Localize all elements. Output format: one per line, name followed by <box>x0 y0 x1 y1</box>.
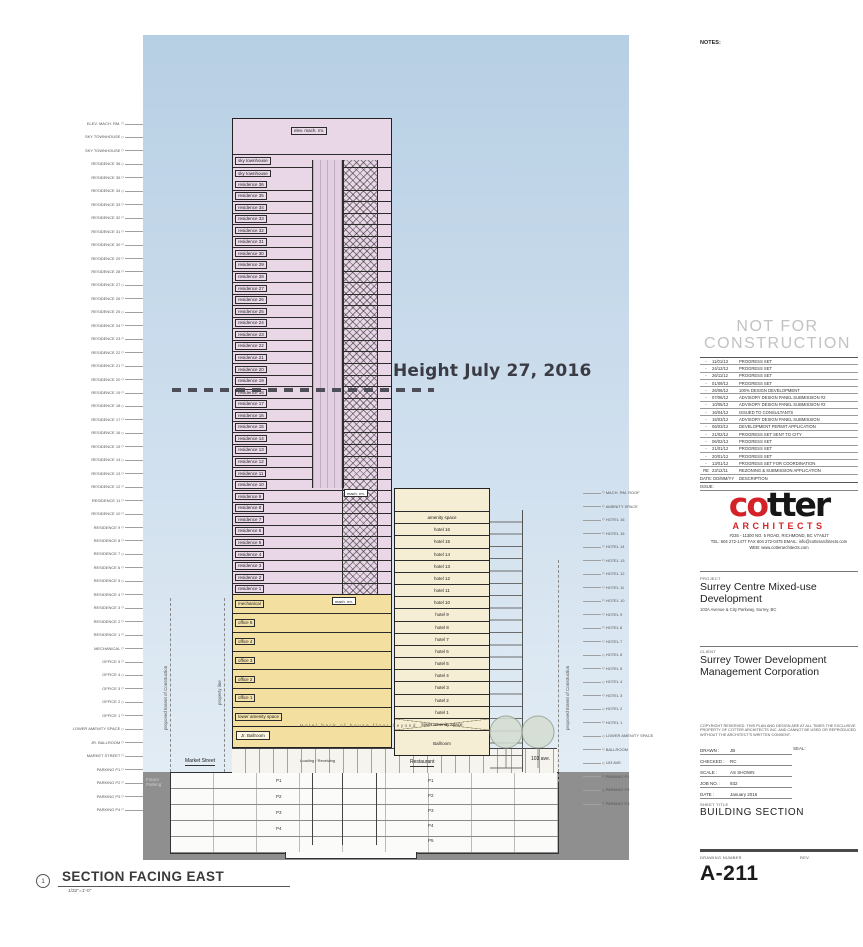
revision-code: - <box>700 410 712 415</box>
elevator-machine-room: elev. mach. rm. <box>233 119 391 155</box>
elevation-diamond-icon: ◇ <box>602 640 605 644</box>
level-marker: RESIDENCE 25◇ <box>2 308 143 316</box>
level-marker-label: RESIDENCE 16 <box>91 431 120 435</box>
elevation-diamond-icon: ◇ <box>602 762 605 766</box>
floor-label: residence 17 <box>235 400 267 408</box>
level-marker-label: RESIDENCE 20 <box>91 378 120 382</box>
level-marker: PARKING P2◇ <box>2 779 143 787</box>
info-row: SCALE :AS SHOWN <box>700 766 792 777</box>
level-marker: RESIDENCE 14◇ <box>2 456 143 464</box>
leader-line <box>583 736 601 737</box>
property-line-label: property line <box>217 625 222 705</box>
leader-line <box>125 500 143 501</box>
level-marker: RESIDENCE 22◇ <box>2 349 143 357</box>
leader-line <box>583 628 601 629</box>
floor-label: residence 9 <box>235 493 264 501</box>
elevation-diamond-icon: ◇ <box>602 748 605 752</box>
level-marker-label: SKY TOWNHOUSE <box>85 135 120 139</box>
level-marker: RESIDENCE 17◇ <box>2 416 143 424</box>
leader-line <box>125 648 143 649</box>
floor-label: residence 25 <box>235 308 267 316</box>
revision-description: DEVELOPMENT PERMIT APPLICATION <box>739 424 858 429</box>
revision-date: 21/02/12 <box>712 432 739 437</box>
section-title: SECTION FACING EAST <box>62 869 224 884</box>
elevation-diamond-icon: ◇ <box>121 606 124 610</box>
level-marker-label: OFFICE 2 <box>102 700 120 704</box>
foundation-stub <box>285 852 417 859</box>
elevation-diamond-icon: ◇ <box>121 781 124 785</box>
revision-description: ADVISORY DESIGN PANEL SUBMISSION #2 <box>739 402 858 407</box>
elevation-diamond-icon: ◇ <box>602 694 605 698</box>
level-marker: RESIDENCE 33◇ <box>2 201 143 209</box>
revision-row: -21/01/12PROGRESS SET <box>700 446 858 453</box>
level-marker-label: RESIDENCE 35 <box>91 176 120 180</box>
revision-date: 24/12/12 <box>712 366 739 371</box>
floor-label: office 2 <box>235 676 255 684</box>
level-marker-label: RESIDENCE 12 <box>91 485 120 489</box>
floor-label: office 3 <box>235 657 255 665</box>
elevation-diamond-icon: ◇ <box>121 176 124 180</box>
level-marker: RESIDENCE 21◇ <box>2 362 143 370</box>
level-marker: RESIDENCE 5◇ <box>2 577 143 585</box>
floor-row: hotel 9 <box>395 608 489 620</box>
elevation-diamond-icon: ◇ <box>121 499 124 503</box>
revision-row: -06/02/12PROGRESS SET <box>700 438 858 445</box>
leader-line <box>583 533 601 534</box>
elevation-diamond-icon: ◇ <box>602 586 605 590</box>
revision-description: REZONING & SUBMISSION APPLICATION <box>739 468 858 473</box>
project-address: 103A Avenue & City Parkway, Surrey, BC <box>700 607 776 612</box>
nfc-line1: NOT FOR <box>695 318 860 335</box>
revision-row: -13/01/12PROGRESS SET FOR COORDINATION <box>700 460 858 467</box>
leader-line <box>125 191 143 192</box>
floor-row: hotel 15 <box>395 535 489 547</box>
elevation-diamond-icon: ◇ <box>121 364 124 368</box>
elevation-diamond-icon: ◇ <box>602 735 605 739</box>
seal-label: SEAL: <box>793 746 806 751</box>
floor-label: residence 28 <box>235 273 267 281</box>
elevation-diamond-icon: ◇ <box>602 626 605 630</box>
leader-line <box>583 493 601 494</box>
level-marker: ◇HOTEL 7 <box>583 638 698 646</box>
floor-row: mechanical <box>233 595 391 613</box>
leader-line <box>583 587 601 588</box>
floor-label: residence 8 <box>235 504 264 512</box>
leader-line <box>125 769 143 770</box>
level-marker: RESIDENCE 3◇ <box>2 604 143 612</box>
level-marker-label: MACH. RM. ROOF <box>606 491 640 495</box>
level-marker: RESIDENCE 27◇ <box>2 281 143 289</box>
level-marker-label: RESIDENCE 15 <box>91 445 120 449</box>
leader-line <box>125 271 143 272</box>
elevation-diamond-icon: ◇ <box>121 311 124 315</box>
elevation-diamond-icon: ◇ <box>602 532 605 536</box>
level-marker: PARKING P4◇ <box>2 806 143 814</box>
info-row: DATE :January 2016 <box>700 788 792 799</box>
firm-contact: TEL: 604 272-1477 FAX 604 272-0475 EMAIL… <box>700 539 858 544</box>
level-marker: SKY TOWNHOUSE◇ <box>2 147 143 155</box>
revision-code: - <box>700 446 712 451</box>
revision-row: -21/02/12PROGRESS SET SENT TO CITY <box>700 431 858 438</box>
floor-label: residence 33 <box>235 215 267 223</box>
level-marker-label: PARKING P3 <box>606 802 630 806</box>
floor-row: hotel 3 <box>395 681 489 693</box>
elevation-diamond-icon: ◇ <box>121 580 124 584</box>
drawing-sheet: Future Parking elev. mach. rm. sky townh… <box>0 0 863 947</box>
level-marker: ◇PARKING P1 <box>583 773 698 781</box>
level-marker: ◇PARKING P2 <box>583 786 698 794</box>
floor-label: residence 12 <box>235 458 267 466</box>
floor-row: office 4 <box>233 632 391 651</box>
elevation-diamond-icon: ◇ <box>602 667 605 671</box>
elevation-diamond-icon: ◇ <box>121 539 124 543</box>
floor-row: hotel 8 <box>395 621 489 633</box>
architects-wordmark: ARCHITECTS <box>700 521 858 531</box>
leader-line <box>583 560 601 561</box>
floor-row: office 2 <box>233 669 391 688</box>
level-marker: RESIDENCE 24◇ <box>2 322 143 330</box>
floor-label: residence 19 <box>235 377 267 385</box>
revision-row: -01/09/12PROGRESS SET <box>700 380 858 387</box>
leader-line <box>125 460 143 461</box>
elevation-diamond-icon: ◇ <box>121 378 124 382</box>
hotel-wing-section: amenity spacehotel 16hotel 15hotel 14hot… <box>394 488 490 756</box>
floor-label: hotel 4 <box>435 673 449 678</box>
level-marker: OFFICE 4◇ <box>2 671 143 679</box>
floor-label: residence 36 <box>235 181 267 189</box>
revision-date: 16/04/12 <box>712 410 739 415</box>
level-marker: ◇HOTEL 5 <box>583 665 698 673</box>
elevation-diamond-icon: ◇ <box>121 647 124 651</box>
leader-line <box>583 749 601 750</box>
elevation-diamond-icon: ◇ <box>121 163 124 167</box>
leader-line <box>125 446 143 447</box>
level-marker: ◇BALLROOM <box>583 746 698 754</box>
leader-line <box>125 729 143 730</box>
firm-address: #235 - 11300 NO. 5 ROAD, RICHMOND, BC V7… <box>700 533 858 538</box>
level-marker: ◇HOTEL 15 <box>583 530 698 538</box>
floor-row: office 1 <box>233 688 391 707</box>
revision-code: - <box>700 373 712 378</box>
level-marker-label: RESIDENCE 34 <box>91 189 120 193</box>
leader-line <box>125 419 143 420</box>
level-marker: RESIDENCE 20◇ <box>2 376 143 384</box>
elevation-diamond-icon: ◇ <box>121 284 124 288</box>
elevation-diamond-icon: ◇ <box>602 572 605 576</box>
floor-label: residence 10 <box>235 481 267 489</box>
revision-table: -11/01/13PROGRESS SET-24/12/12PROGRESS S… <box>700 357 858 491</box>
mach-rm-label: mach. rm. <box>344 489 368 497</box>
elevation-diamond-icon: ◇ <box>121 728 124 732</box>
info-row: CHECKED :RC <box>700 755 792 766</box>
leader-line <box>125 312 143 313</box>
revision-description: ISSUED TO CONSULTANTS <box>739 410 858 415</box>
floor-label: sky townhouse <box>235 157 271 165</box>
floor-label: residence 24 <box>235 319 267 327</box>
extent-label-right: proposed Extent of Construction <box>565 600 570 730</box>
level-marker-label: RESIDENCE 29 <box>91 257 120 261</box>
podium-floors: mechanicaloffice 5office 4office 3office… <box>233 595 391 726</box>
drawing-number-label: DRAWING NUMBER <box>700 855 742 860</box>
elevation-diamond-icon: ◇ <box>121 459 124 463</box>
floor-label: residence 35 <box>235 192 267 200</box>
revision-row: -26/11/12PROGRESS SET <box>700 373 858 380</box>
floor-label: residence 31 <box>235 238 267 246</box>
level-marker-label: RESIDENCE 2 <box>94 620 121 624</box>
level-marker: RESIDENCE 26◇ <box>2 295 143 303</box>
level-marker: RESIDENCE 12◇ <box>2 483 143 491</box>
leader-line <box>125 688 143 689</box>
floor-label: residence 2 <box>235 574 264 582</box>
level-marker-label: RESIDENCE 6 <box>94 566 121 570</box>
level-marker-label: RESIDENCE 17 <box>91 418 120 422</box>
revision-description: PROGRESS SET SENT TO CITY <box>739 432 858 437</box>
section-scale: 1/32"=1'-0" <box>68 889 91 894</box>
jr-ballroom-label: Jr. Ballroom <box>236 731 270 740</box>
level-marker-label: HOTEL 10 <box>606 599 625 603</box>
level-marker: ◇HOTEL 2 <box>583 705 698 713</box>
level-marker: RESIDENCE 1◇ <box>2 631 143 639</box>
leader-line <box>125 204 143 205</box>
leader-line <box>125 473 143 474</box>
floor-label: residence 7 <box>235 516 264 524</box>
leader-line <box>125 164 143 165</box>
floor-label: hotel 10 <box>434 600 450 605</box>
floor-row: office 3 <box>233 651 391 670</box>
level-marker-label: RESIDENCE 19 <box>91 391 120 395</box>
revision-row: RE23/12/11REZONING & SUBMISSION APPLICAT… <box>700 467 858 474</box>
revision-code: - <box>700 454 712 459</box>
podium-section: mechanicaloffice 5office 4office 3office… <box>232 594 392 726</box>
level-marker: ELEV. MACH. RM.◇ <box>2 120 143 128</box>
jr-ballroom-level: Jr. Ballroom <box>232 726 392 748</box>
level-marker: ◇HOTEL 1 <box>583 719 698 727</box>
elevation-diamond-icon: ◇ <box>121 701 124 705</box>
leader-line <box>125 594 143 595</box>
floor-label: residence 13 <box>235 446 267 454</box>
elevation-diamond-icon: ◇ <box>602 681 605 685</box>
rev-desc-col-label: DESCRIPTION <box>739 476 768 481</box>
elevation-diamond-icon: ◇ <box>121 122 124 126</box>
level-marker-label: RESIDENCE 1 <box>94 633 121 637</box>
leader-line <box>125 325 143 326</box>
floor-label: hotel 3 <box>435 685 449 690</box>
leader-line <box>583 776 601 777</box>
revision-description: PROGRESS SET <box>739 439 858 444</box>
level-marker: RESIDENCE 13◇ <box>2 470 143 478</box>
level-marker: ◇HOTEL 12 <box>583 570 698 578</box>
revision-code: - <box>700 439 712 444</box>
elevation-diamond-icon: ◇ <box>121 203 124 207</box>
level-marker-label: HOTEL 1 <box>606 721 623 725</box>
level-marker-label: OFFICE 4 <box>102 673 120 677</box>
level-marker-label: RESIDENCE 22 <box>91 351 120 355</box>
leader-line <box>125 218 143 219</box>
floor-label: residence 29 <box>235 261 267 269</box>
level-marker-label: PARKING P2 <box>606 788 630 792</box>
level-marker-label: HOTEL 14 <box>606 545 625 549</box>
logo-part1: co <box>729 485 767 524</box>
elevation-diamond-icon: ◇ <box>121 593 124 597</box>
divider <box>700 571 858 572</box>
revision-date: 10/05/12 <box>712 402 739 407</box>
leader-line <box>125 540 143 541</box>
floor-row: hotel 10 <box>395 596 489 608</box>
revision-code: RE <box>700 468 712 473</box>
leader-line <box>125 487 143 488</box>
elevation-diamond-icon: ◇ <box>121 485 124 489</box>
leader-line <box>125 756 143 757</box>
level-marker: RESIDENCE 4◇ <box>2 591 143 599</box>
level-marker-label: MECHANICAL <box>94 647 120 651</box>
elevation-diamond-icon: ◇ <box>602 518 605 522</box>
level-marker: RESIDENCE 28◇ <box>2 268 143 276</box>
leader-line <box>125 352 143 353</box>
floor-label: residence 21 <box>235 354 267 362</box>
revision-row: -06/03/12DEVELOPMENT PERMIT APPLICATION <box>700 424 858 431</box>
issue-label: ISSUE: <box>700 484 714 489</box>
level-marker: RESIDENCE 7◇ <box>2 550 143 558</box>
floor-label: hotel 5 <box>435 661 449 666</box>
elevation-diamond-icon: ◇ <box>602 599 605 603</box>
level-marker-label: RESIDENCE 31 <box>91 230 120 234</box>
leader-line <box>125 796 143 797</box>
revision-code: - <box>700 381 712 386</box>
level-marker: RESIDENCE 30◇ <box>2 241 143 249</box>
core-wall-line <box>376 772 377 845</box>
revision-code: - <box>700 424 712 429</box>
floor-label: hotel 15 <box>434 539 450 544</box>
street-trees <box>486 708 558 772</box>
floor-row: hotel 11 <box>395 584 489 596</box>
copyright-note: COPYRIGHT RESERVED. THIS PLAN AND DESIGN… <box>700 724 860 737</box>
leader-line <box>125 662 143 663</box>
elevator-core <box>312 160 344 488</box>
leader-line <box>583 547 601 548</box>
level-marker: RESIDENCE 36◇ <box>2 160 143 168</box>
floor-label: sky townhouse <box>235 170 271 178</box>
revision-code: - <box>700 395 712 400</box>
revision-description: PROGRESS SET <box>739 366 858 371</box>
revision-date: 21/01/12 <box>712 446 739 451</box>
level-marker-label: HOTEL 3 <box>606 694 623 698</box>
level-marker: ◇HOTEL 13 <box>583 557 698 565</box>
parking-level-label: P5 <box>428 838 434 843</box>
level-marker-label: RESIDENCE 13 <box>91 472 120 476</box>
hotel-boh-note: Hotel back of house floor beyond <box>300 723 500 728</box>
floor-label: hotel 2 <box>435 698 449 703</box>
elevation-diamond-icon: ◇ <box>121 566 124 570</box>
elevation-diamond-icon: ◇ <box>121 674 124 678</box>
ballroom-level: Ballroom <box>395 730 489 755</box>
revision-row: -11/01/13PROGRESS SET <box>700 358 858 365</box>
elevation-diamond-icon: ◇ <box>121 243 124 247</box>
level-marker: RESIDENCE 34◇ <box>2 187 143 195</box>
leader-line <box>125 621 143 622</box>
level-marker-label: RESIDENCE 18 <box>91 404 120 408</box>
elevation-diamond-icon: ◇ <box>602 545 605 549</box>
level-marker: ◇HOTEL 9 <box>583 611 698 619</box>
floor-label: residence 3 <box>235 562 264 570</box>
floor-label: hotel 7 <box>435 637 449 642</box>
cotter-logo: cotter <box>700 490 858 520</box>
leader-line <box>125 177 143 178</box>
level-marker: JR. BALLROOM◇ <box>2 739 143 747</box>
leader-line <box>583 804 601 805</box>
level-marker-label: HOTEL 11 <box>606 586 624 590</box>
floor-label: amenity space <box>427 515 456 520</box>
elevation-diamond-icon: ◇ <box>121 795 124 799</box>
leader-line <box>583 709 601 710</box>
level-marker-label: RESIDENCE 14 <box>91 458 120 462</box>
floor-label: residence 15 <box>235 423 267 431</box>
revision-date: 01/09/12 <box>712 381 739 386</box>
leader-line <box>125 702 143 703</box>
level-marker: RESIDENCE 8◇ <box>2 537 143 545</box>
revision-row: -15/03/12ADVISORY DESIGN PANEL SUBMISSIO… <box>700 416 858 423</box>
level-marker-label: PARKING P3 <box>97 795 121 799</box>
elevation-diamond-icon: ◇ <box>121 337 124 341</box>
revision-date: 06/03/12 <box>712 424 739 429</box>
level-marker-label: LOWER AMENITY SPACE <box>73 727 121 731</box>
floor-label: office 5 <box>235 619 255 627</box>
floor-label: residence 22 <box>235 342 267 350</box>
level-marker: RESIDENCE 6◇ <box>2 564 143 572</box>
floor-label: mechanical <box>235 600 264 608</box>
level-marker: RESIDENCE 9◇ <box>2 524 143 532</box>
client-name: Surrey Tower Development Management Corp… <box>700 655 858 678</box>
notes-label: NOTES: <box>700 40 721 46</box>
floor-label: hotel 11 <box>434 588 450 593</box>
level-marker: MARKET STREET◇ <box>2 752 143 760</box>
divider <box>700 646 858 647</box>
elevation-diamond-icon: ◇ <box>121 230 124 234</box>
level-marker: OFFICE 1◇ <box>2 712 143 720</box>
elevation-diamond-icon: ◇ <box>121 418 124 422</box>
leader-line <box>125 124 143 125</box>
level-marker: OFFICE 2◇ <box>2 698 143 706</box>
elevation-diamond-icon: ◇ <box>121 351 124 355</box>
floor-row: amenity space <box>395 512 489 523</box>
level-marker: RESIDENCE 15◇ <box>2 443 143 451</box>
revision-row: -20/01/12PROGRESS SET <box>700 453 858 460</box>
level-marker-label: HOTEL 15 <box>606 532 625 536</box>
level-marker-label: RESIDENCE 7 <box>94 552 121 556</box>
floor-label: hotel 8 <box>435 625 449 630</box>
level-marker-label: HOTEL 2 <box>606 707 623 711</box>
level-marker: RESIDENCE 10◇ <box>2 510 143 518</box>
leader-line <box>125 554 143 555</box>
elevation-diamond-icon: ◇ <box>121 808 124 812</box>
leader-line <box>125 608 143 609</box>
level-marker: RESIDENCE 19◇ <box>2 389 143 397</box>
level-marker: ◇HOTEL 6 <box>583 651 698 659</box>
nfc-line2: CONSTRUCTION <box>695 335 860 352</box>
leader-line <box>583 790 601 791</box>
sheet-title: BUILDING SECTION <box>700 807 804 818</box>
elevation-diamond-icon: ◇ <box>602 789 605 793</box>
level-marker-label: HOTEL 7 <box>606 640 623 644</box>
floor-row: hotel 6 <box>395 645 489 657</box>
project-name: Surrey Centre Mixed-use Development <box>700 582 858 605</box>
level-marker: RESIDENCE 18◇ <box>2 402 143 410</box>
parking-level-label: P3 <box>428 808 434 813</box>
level-marker: ◇MACH. RM. ROOF <box>583 489 698 497</box>
elevation-diamond-icon: ◇ <box>121 324 124 328</box>
parking-level-label: P3 <box>276 810 282 815</box>
core-wall-line <box>312 772 313 845</box>
level-marker: ◇HOTEL 3 <box>583 692 698 700</box>
